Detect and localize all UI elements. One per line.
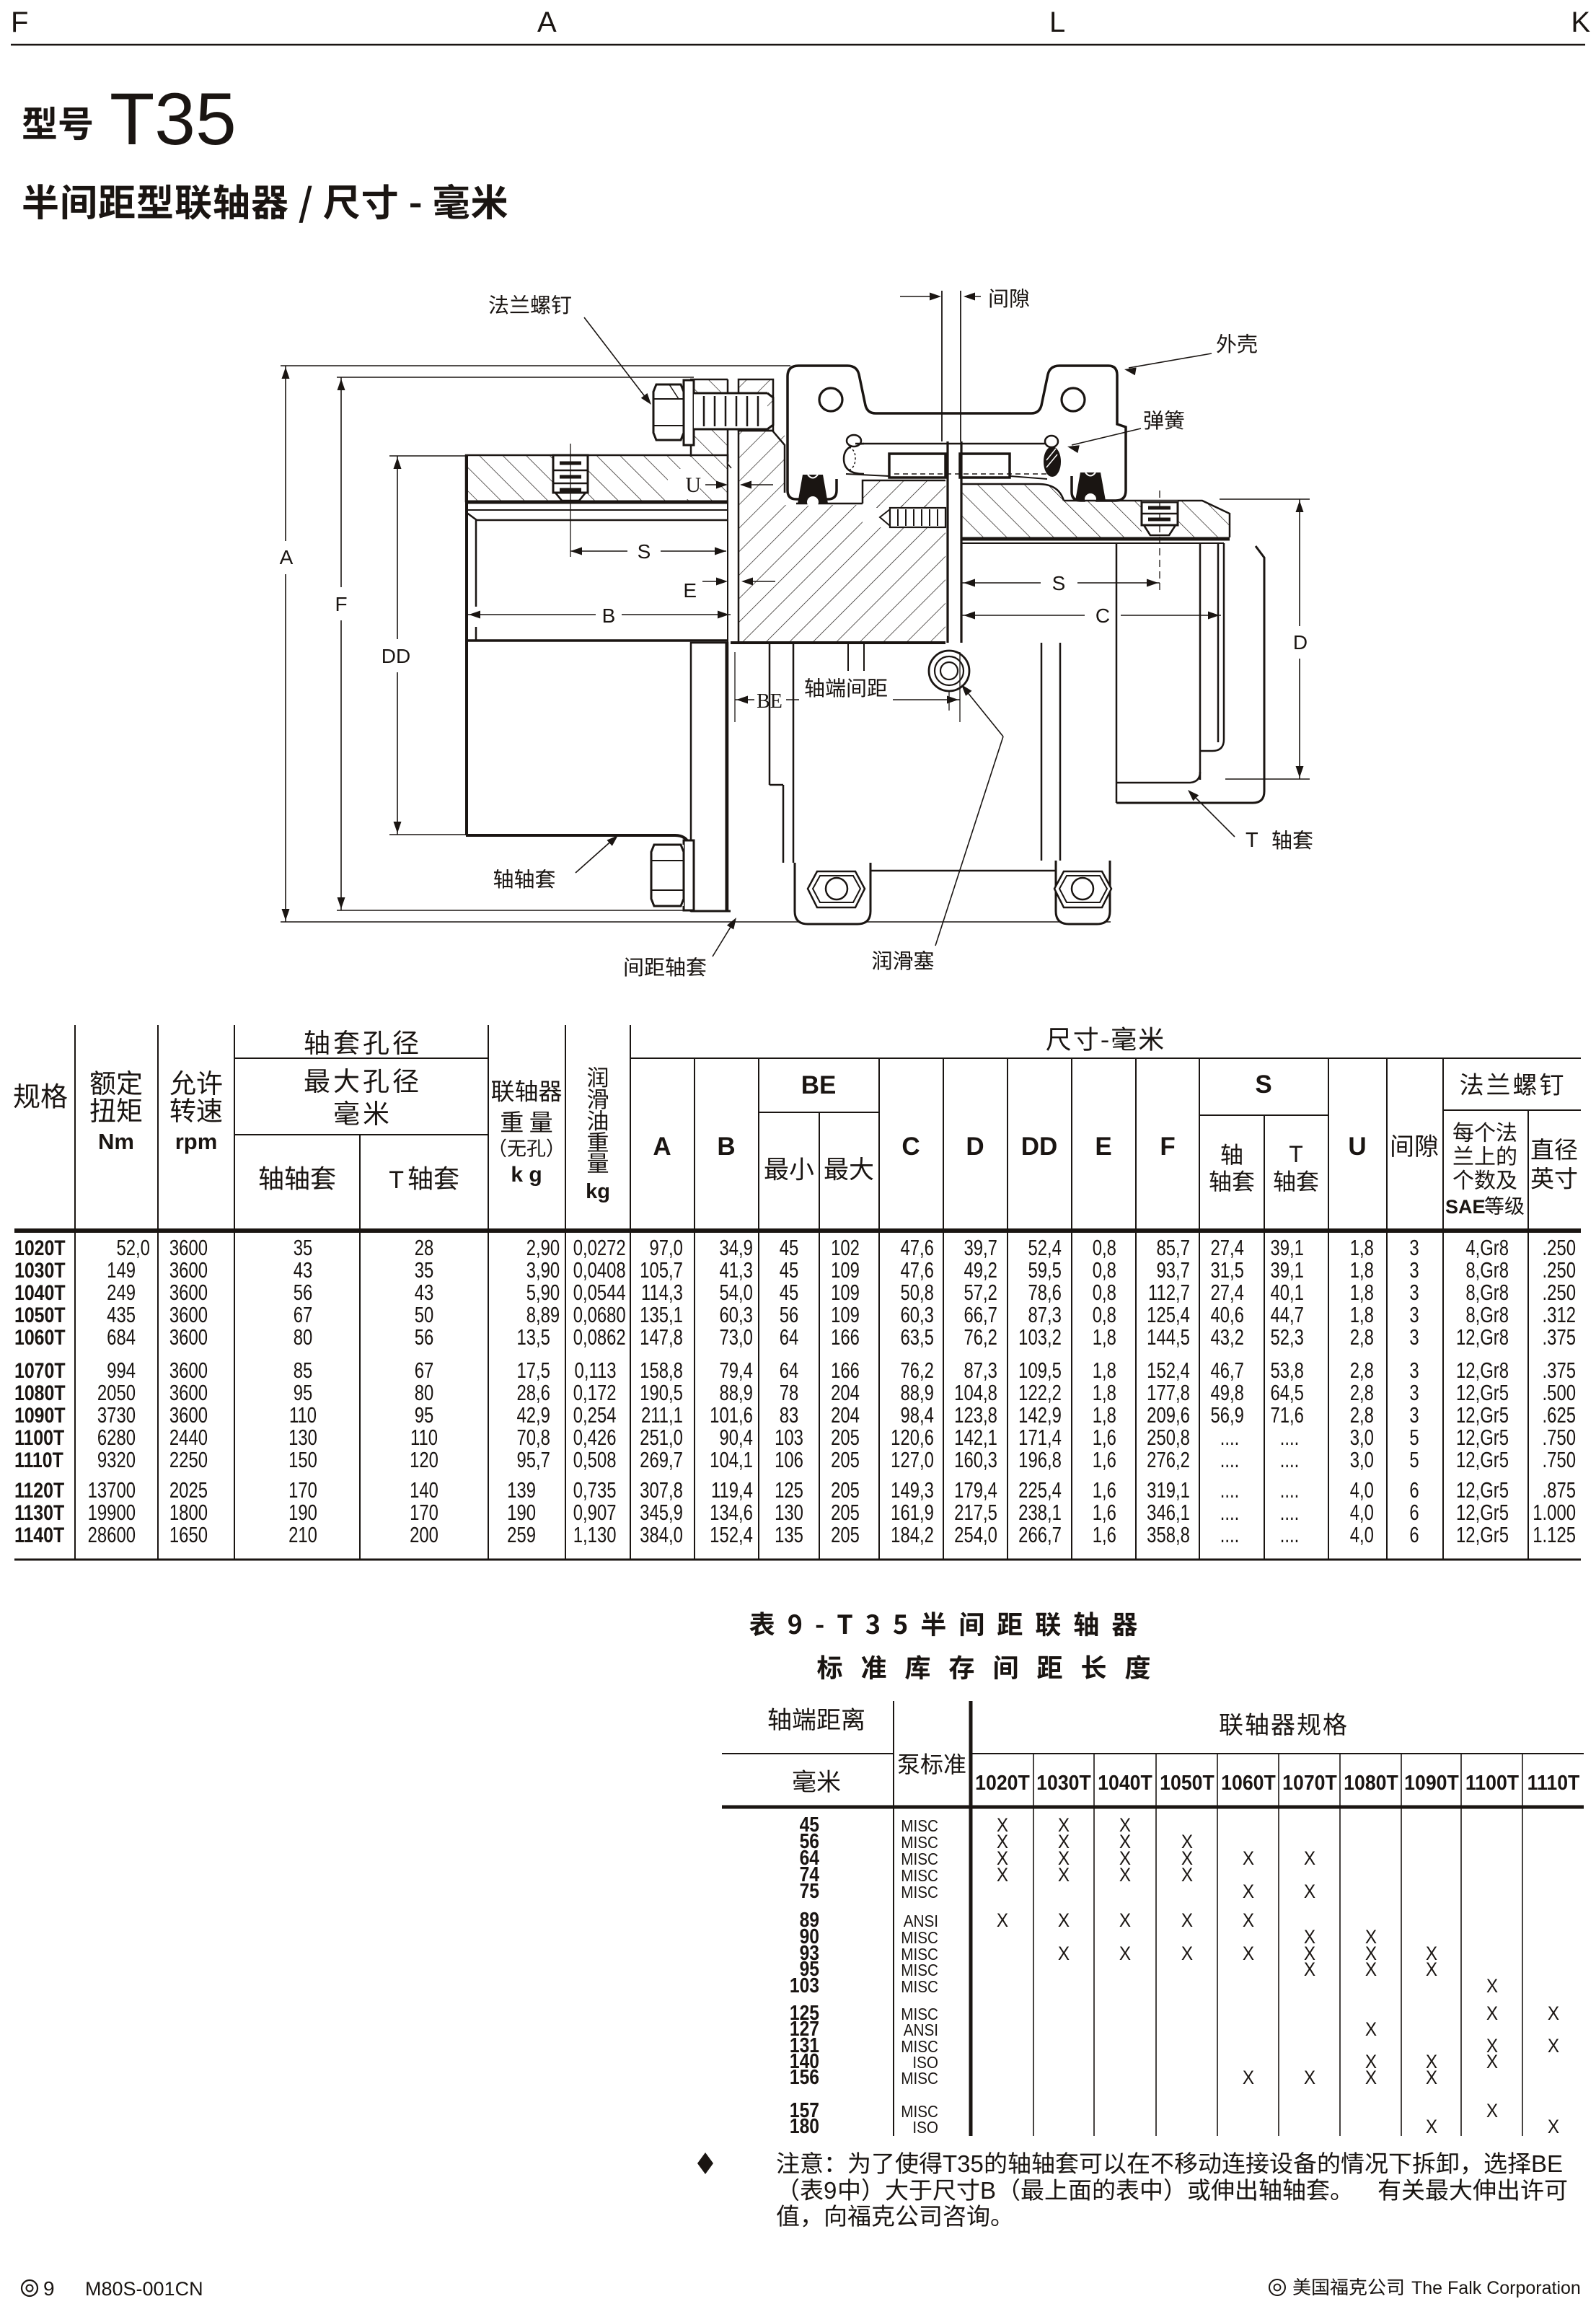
svg-text:106: 106	[775, 1447, 803, 1472]
svg-text:71,6: 71,6	[1270, 1402, 1303, 1428]
svg-text:41,3: 41,3	[719, 1257, 752, 1283]
svg-text:X: X	[1181, 1865, 1193, 1886]
svg-text:31,5: 31,5	[1210, 1257, 1243, 1283]
svg-text:BE: BE	[757, 690, 782, 713]
svg-text:F: F	[1160, 1133, 1175, 1161]
svg-text:39,7: 39,7	[964, 1235, 997, 1260]
svg-text:45: 45	[780, 1235, 799, 1260]
svg-text:3: 3	[1409, 1402, 1419, 1428]
svg-text:134,6: 134,6	[710, 1500, 753, 1525]
svg-text:X: X	[1119, 1910, 1131, 1931]
svg-text:105,7: 105,7	[640, 1257, 683, 1283]
svg-text:0,254: 0,254	[573, 1402, 617, 1428]
svg-text:120: 120	[410, 1447, 438, 1472]
svg-text:358,8: 358,8	[1147, 1522, 1190, 1547]
svg-text:204: 204	[831, 1402, 860, 1428]
svg-text:95: 95	[415, 1402, 434, 1428]
svg-text:319,1: 319,1	[1147, 1477, 1190, 1503]
svg-text:1,6: 1,6	[1093, 1500, 1116, 1525]
svg-text:T: T	[1246, 829, 1258, 852]
svg-text:384,0: 384,0	[640, 1522, 683, 1547]
svg-text:2,8: 2,8	[1350, 1324, 1374, 1350]
svg-text:190,5: 190,5	[640, 1380, 683, 1405]
svg-text:2440: 2440	[169, 1425, 208, 1450]
svg-text:95,7: 95,7	[516, 1447, 550, 1472]
svg-text:X: X	[1243, 1943, 1254, 1964]
svg-text:28600: 28600	[88, 1522, 136, 1547]
svg-text:2025: 2025	[169, 1477, 208, 1503]
svg-text:50: 50	[415, 1302, 434, 1327]
svg-text:X: X	[997, 1910, 1008, 1931]
svg-text:177,8: 177,8	[1147, 1380, 1190, 1405]
svg-text:78,6: 78,6	[1028, 1280, 1061, 1305]
svg-text:435: 435	[107, 1302, 136, 1327]
svg-text:1,8: 1,8	[1350, 1257, 1374, 1283]
svg-text:3600: 3600	[169, 1324, 208, 1350]
svg-text:F: F	[11, 6, 28, 38]
svg-text:161,9: 161,9	[891, 1500, 934, 1525]
svg-text:X: X	[1243, 1881, 1254, 1902]
svg-text:3600: 3600	[169, 1358, 208, 1383]
svg-text:....: ....	[1220, 1477, 1240, 1503]
svg-text:1090T: 1090T	[14, 1403, 66, 1428]
svg-text:56: 56	[415, 1324, 434, 1350]
svg-text:80: 80	[415, 1380, 434, 1405]
svg-text:X: X	[1426, 2116, 1437, 2137]
svg-text:3,0: 3,0	[1350, 1425, 1374, 1450]
svg-text:249: 249	[107, 1280, 136, 1305]
svg-text:X: X	[1119, 1865, 1131, 1886]
svg-text:9320: 9320	[97, 1447, 136, 1472]
svg-text:0,172: 0,172	[573, 1380, 617, 1405]
svg-text:X: X	[1486, 2003, 1498, 2024]
svg-text:3600: 3600	[169, 1235, 208, 1260]
svg-text:44,7: 44,7	[1270, 1302, 1303, 1327]
svg-text:130: 130	[775, 1500, 803, 1525]
svg-text:59,5: 59,5	[1028, 1257, 1061, 1283]
svg-text:E: E	[1095, 1133, 1111, 1161]
svg-text:276,2: 276,2	[1147, 1447, 1190, 1472]
svg-text:X: X	[1304, 1959, 1315, 1980]
svg-text:98,4: 98,4	[900, 1402, 933, 1428]
svg-text:3: 3	[1409, 1380, 1419, 1405]
svg-text:209,6: 209,6	[1147, 1402, 1190, 1428]
svg-text:79,4: 79,4	[719, 1358, 752, 1383]
svg-text:190: 190	[288, 1500, 317, 1525]
svg-text:35: 35	[415, 1257, 434, 1283]
svg-text:56: 56	[294, 1280, 313, 1305]
svg-text:85: 85	[294, 1358, 313, 1383]
svg-text:125,4: 125,4	[1147, 1302, 1190, 1327]
svg-text:101,6: 101,6	[710, 1402, 753, 1428]
svg-text:42,9: 42,9	[516, 1402, 550, 1428]
svg-text:C: C	[1095, 604, 1110, 627]
svg-text:205: 205	[831, 1425, 860, 1450]
svg-text:12,Gr5: 12,Gr5	[1456, 1522, 1509, 1547]
svg-text:8,89: 8,89	[526, 1302, 560, 1327]
svg-text:56,9: 56,9	[1210, 1402, 1243, 1428]
svg-text:1100T: 1100T	[1465, 1771, 1519, 1794]
svg-text:93,7: 93,7	[1156, 1257, 1189, 1283]
svg-text:5: 5	[1409, 1447, 1419, 1472]
svg-text:684: 684	[107, 1324, 136, 1350]
svg-text:1130T: 1130T	[14, 1500, 64, 1525]
svg-text:109: 109	[831, 1280, 860, 1305]
svg-text:17,5: 17,5	[516, 1358, 550, 1383]
svg-text:12,Gr5: 12,Gr5	[1456, 1447, 1509, 1472]
svg-text:6: 6	[1409, 1500, 1419, 1525]
svg-text:205: 205	[831, 1522, 860, 1547]
svg-text:8,Gr8: 8,Gr8	[1465, 1257, 1509, 1283]
svg-text:S: S	[1255, 1070, 1271, 1099]
svg-text:1,6: 1,6	[1093, 1425, 1116, 1450]
svg-text:88,9: 88,9	[900, 1380, 933, 1405]
svg-text:1120T: 1120T	[14, 1478, 64, 1503]
svg-text:180: 180	[790, 2114, 819, 2137]
svg-text:0,508: 0,508	[573, 1447, 617, 1472]
svg-text:225,4: 225,4	[1018, 1477, 1062, 1503]
svg-text:Nm: Nm	[98, 1129, 134, 1154]
svg-text:3600: 3600	[169, 1380, 208, 1405]
svg-text:X: X	[1119, 1943, 1131, 1964]
svg-text:....: ....	[1280, 1447, 1300, 1472]
svg-text:75: 75	[800, 1879, 819, 1902]
svg-text:144,5: 144,5	[1147, 1324, 1190, 1350]
svg-text:MISC: MISC	[901, 2069, 938, 2088]
svg-text:104,1: 104,1	[710, 1447, 753, 1472]
svg-text:X: X	[1548, 2116, 1559, 2137]
svg-text:160,3: 160,3	[954, 1447, 997, 1472]
svg-text:1030T: 1030T	[1036, 1771, 1091, 1794]
svg-text:0,0680: 0,0680	[573, 1302, 626, 1327]
svg-text:60,3: 60,3	[900, 1302, 933, 1327]
svg-text:1,6: 1,6	[1093, 1477, 1116, 1503]
svg-text:0,8: 0,8	[1093, 1235, 1116, 1260]
svg-text:1050T: 1050T	[1160, 1771, 1214, 1794]
svg-text:97,0: 97,0	[649, 1235, 682, 1260]
svg-text:X: X	[1304, 1881, 1315, 1902]
svg-text:0,8: 0,8	[1093, 1280, 1116, 1305]
svg-text:104,8: 104,8	[954, 1380, 997, 1405]
svg-text:3: 3	[1409, 1257, 1419, 1283]
svg-text:1050T: 1050T	[14, 1303, 66, 1327]
svg-text:205: 205	[831, 1500, 860, 1525]
svg-text:1110T: 1110T	[1527, 1771, 1580, 1794]
svg-text:35: 35	[294, 1235, 313, 1260]
svg-text:6: 6	[1409, 1477, 1419, 1503]
svg-text:.500: .500	[1543, 1380, 1576, 1405]
svg-text:0,426: 0,426	[573, 1425, 617, 1450]
svg-text:F: F	[335, 593, 347, 615]
svg-text:12,Gr5: 12,Gr5	[1456, 1425, 1509, 1450]
svg-text:0,113: 0,113	[575, 1358, 617, 1383]
svg-text:12,Gr5: 12,Gr5	[1456, 1500, 1509, 1525]
svg-text:2050: 2050	[97, 1380, 136, 1405]
svg-text:D: D	[1293, 631, 1308, 654]
svg-text:S: S	[638, 540, 651, 563]
svg-text:109,5: 109,5	[1018, 1358, 1062, 1383]
svg-text:A: A	[653, 1133, 671, 1161]
svg-text:X: X	[1243, 1848, 1254, 1869]
svg-text:4,Gr8: 4,Gr8	[1465, 1235, 1509, 1260]
svg-text:52,0: 52,0	[116, 1235, 149, 1260]
svg-text:150: 150	[288, 1447, 317, 1472]
svg-text:B: B	[980, 2177, 996, 2204]
svg-text:266,7: 266,7	[1018, 1522, 1062, 1547]
svg-text:53,8: 53,8	[1270, 1358, 1303, 1383]
svg-text:64: 64	[780, 1324, 799, 1350]
svg-text:1110T: 1110T	[14, 1448, 63, 1472]
svg-text:1.125: 1.125	[1533, 1522, 1576, 1547]
svg-text:0,907: 0,907	[573, 1500, 617, 1525]
svg-text:2,8: 2,8	[1350, 1402, 1374, 1428]
svg-text:204: 204	[831, 1380, 860, 1405]
svg-text:BE: BE	[1531, 2150, 1563, 2177]
svg-text:DD: DD	[382, 645, 410, 667]
svg-text:170: 170	[288, 1477, 317, 1503]
svg-text:5: 5	[1409, 1425, 1419, 1450]
svg-text:158,8: 158,8	[640, 1358, 683, 1383]
svg-text:250,8: 250,8	[1147, 1425, 1190, 1450]
svg-text:103,2: 103,2	[1018, 1324, 1062, 1350]
svg-text:251,0: 251,0	[640, 1425, 683, 1450]
svg-text:102: 102	[831, 1235, 860, 1260]
svg-text:A: A	[537, 6, 557, 38]
svg-text:0,8: 0,8	[1093, 1257, 1116, 1283]
svg-text:217,5: 217,5	[954, 1500, 997, 1525]
svg-text:X: X	[1304, 2067, 1315, 2088]
svg-text:1,8: 1,8	[1093, 1380, 1116, 1405]
svg-text:SAE: SAE	[1445, 1196, 1486, 1218]
svg-text:1090T: 1090T	[1404, 1771, 1459, 1794]
svg-text:X: X	[1486, 1976, 1498, 1997]
svg-text:3600: 3600	[169, 1280, 208, 1305]
svg-text:50,8: 50,8	[900, 1280, 933, 1305]
svg-text:170: 170	[410, 1500, 438, 1525]
svg-text:60,3: 60,3	[719, 1302, 752, 1327]
svg-text:1100T: 1100T	[14, 1425, 64, 1450]
svg-text:1080T: 1080T	[14, 1381, 66, 1405]
svg-text:156: 156	[790, 2065, 819, 2088]
svg-text:C: C	[901, 1133, 920, 1161]
svg-text:127,0: 127,0	[891, 1447, 934, 1472]
svg-text:.875: .875	[1543, 1477, 1576, 1503]
svg-text:U: U	[685, 473, 701, 497]
svg-text:....: ....	[1220, 1500, 1240, 1525]
svg-text:3: 3	[1409, 1235, 1419, 1260]
svg-text:3: 3	[1409, 1302, 1419, 1327]
svg-text:1060T: 1060T	[14, 1325, 66, 1350]
svg-text:307,8: 307,8	[640, 1477, 683, 1503]
svg-text:39,1: 39,1	[1270, 1257, 1303, 1283]
svg-text:X: X	[997, 1865, 1008, 1886]
svg-text:X: X	[1426, 2067, 1437, 2088]
svg-text:.625: .625	[1543, 1402, 1576, 1428]
svg-text:76,2: 76,2	[900, 1358, 933, 1383]
svg-text:8,Gr8: 8,Gr8	[1465, 1280, 1509, 1305]
svg-text:205: 205	[831, 1447, 860, 1472]
svg-text:BE: BE	[801, 1071, 837, 1099]
svg-text:2250: 2250	[169, 1447, 208, 1472]
svg-text:4,0: 4,0	[1350, 1477, 1374, 1503]
svg-text:A: A	[280, 546, 294, 568]
svg-text:8,Gr8: 8,Gr8	[1465, 1302, 1509, 1327]
svg-text:3: 3	[1409, 1280, 1419, 1305]
svg-text:1020T: 1020T	[14, 1236, 66, 1260]
svg-text:171,4: 171,4	[1018, 1425, 1062, 1450]
svg-text:142,1: 142,1	[954, 1425, 997, 1450]
svg-text:1,8: 1,8	[1093, 1402, 1116, 1428]
svg-text:....: ....	[1220, 1522, 1240, 1547]
svg-text:130: 130	[288, 1425, 317, 1450]
svg-text:4,0: 4,0	[1350, 1522, 1374, 1547]
svg-text:57,2: 57,2	[964, 1280, 997, 1305]
svg-text:1,130: 1,130	[573, 1522, 617, 1547]
svg-text:1.000: 1.000	[1533, 1500, 1576, 1525]
svg-text:M80S-001CN: M80S-001CN	[85, 2278, 203, 2300]
svg-text:1,8: 1,8	[1350, 1280, 1374, 1305]
svg-text:.750: .750	[1543, 1425, 1576, 1450]
svg-text:40,6: 40,6	[1210, 1302, 1243, 1327]
svg-text:X: X	[1486, 2052, 1498, 2072]
svg-text:....: ....	[1280, 1500, 1300, 1525]
svg-text:X: X	[1365, 2067, 1377, 2088]
svg-text:114,3: 114,3	[641, 1280, 683, 1305]
svg-text:3600: 3600	[169, 1257, 208, 1283]
svg-text:MISC: MISC	[901, 1977, 938, 1996]
svg-text:27,4: 27,4	[1210, 1280, 1243, 1305]
svg-text:345,9: 345,9	[640, 1500, 683, 1525]
svg-text:3730: 3730	[97, 1402, 136, 1428]
svg-text:X: X	[1365, 2019, 1377, 2040]
svg-text:179,4: 179,4	[954, 1477, 997, 1503]
svg-text:3: 3	[1409, 1358, 1419, 1383]
svg-text:X: X	[1058, 1943, 1070, 1964]
svg-text:205: 205	[831, 1477, 860, 1503]
svg-text:43: 43	[415, 1280, 434, 1305]
svg-text:X: X	[1243, 1910, 1254, 1931]
svg-text:109: 109	[831, 1257, 860, 1283]
svg-text:149: 149	[107, 1257, 136, 1283]
svg-text:1,8: 1,8	[1093, 1358, 1116, 1383]
svg-text:X: X	[1548, 2036, 1559, 2057]
svg-text:109: 109	[831, 1302, 860, 1327]
svg-text:X: X	[1181, 1910, 1193, 1931]
svg-text:87,3: 87,3	[964, 1358, 997, 1383]
svg-text:1070T: 1070T	[14, 1358, 66, 1383]
svg-text:49,8: 49,8	[1210, 1380, 1243, 1405]
svg-text:2,90: 2,90	[526, 1235, 560, 1260]
svg-text:X: X	[1426, 1959, 1437, 1980]
svg-text:142,9: 142,9	[1018, 1402, 1062, 1428]
svg-text:64,5: 64,5	[1270, 1380, 1303, 1405]
svg-text:K: K	[1571, 6, 1590, 38]
svg-text:kg: kg	[586, 1180, 610, 1203]
svg-text:X: X	[1365, 1959, 1377, 1980]
svg-text:0,8: 0,8	[1093, 1302, 1116, 1327]
svg-text:119,4: 119,4	[711, 1477, 753, 1503]
svg-text:1060T: 1060T	[1221, 1771, 1276, 1794]
svg-text:.250: .250	[1543, 1257, 1576, 1283]
svg-text:196,8: 196,8	[1018, 1447, 1062, 1472]
svg-text:70,8: 70,8	[516, 1425, 550, 1450]
svg-text:0,0408: 0,0408	[573, 1257, 626, 1283]
svg-text:28: 28	[415, 1235, 434, 1260]
svg-text:E: E	[683, 579, 697, 602]
svg-text:103: 103	[775, 1425, 803, 1450]
svg-text:T35: T35	[110, 78, 237, 160]
svg-text:0,0862: 0,0862	[573, 1324, 626, 1350]
svg-text:1800: 1800	[169, 1500, 208, 1525]
svg-text:211,1: 211,1	[641, 1402, 683, 1428]
svg-text:254,0: 254,0	[954, 1522, 997, 1547]
svg-text:90,4: 90,4	[719, 1425, 752, 1450]
svg-text:112,7: 112,7	[1148, 1280, 1190, 1305]
svg-text:78: 78	[780, 1380, 799, 1405]
svg-text:T: T	[1289, 1141, 1303, 1167]
svg-text:184,2: 184,2	[891, 1522, 934, 1547]
svg-text:1040T: 1040T	[14, 1280, 66, 1305]
svg-text:X: X	[1243, 2067, 1254, 2088]
svg-text:....: ....	[1280, 1425, 1300, 1450]
svg-text:B: B	[602, 604, 616, 627]
svg-text:1070T: 1070T	[1282, 1771, 1337, 1794]
svg-text:40,1: 40,1	[1270, 1280, 1303, 1305]
svg-text:.250: .250	[1543, 1235, 1576, 1260]
svg-text:1,6: 1,6	[1093, 1522, 1116, 1547]
svg-text:3600: 3600	[169, 1302, 208, 1327]
svg-text:2,8: 2,8	[1350, 1358, 1374, 1383]
svg-text:122,2: 122,2	[1018, 1380, 1062, 1405]
svg-text:B: B	[717, 1133, 735, 1161]
svg-text:1040T: 1040T	[1098, 1771, 1152, 1794]
svg-text:U: U	[1348, 1133, 1366, 1161]
svg-text:The Falk Corporation: The Falk Corporation	[1411, 2278, 1581, 2298]
svg-text:149,3: 149,3	[891, 1477, 934, 1503]
svg-text:47,6: 47,6	[900, 1257, 933, 1283]
svg-text:.375: .375	[1543, 1358, 1576, 1383]
svg-text:1650: 1650	[169, 1522, 208, 1547]
svg-text:43,2: 43,2	[1210, 1324, 1243, 1350]
svg-text:73,0: 73,0	[719, 1324, 752, 1350]
svg-text:190: 190	[507, 1500, 536, 1525]
svg-text:27,4: 27,4	[1210, 1235, 1243, 1260]
svg-text:6: 6	[1409, 1522, 1419, 1547]
svg-text:67: 67	[415, 1358, 434, 1383]
svg-text:43: 43	[294, 1257, 313, 1283]
svg-text:80: 80	[294, 1324, 313, 1350]
svg-text:66,7: 66,7	[964, 1302, 997, 1327]
svg-text:1030T: 1030T	[14, 1258, 66, 1283]
svg-text:13,5: 13,5	[516, 1324, 550, 1350]
svg-text:166: 166	[831, 1358, 860, 1383]
svg-text:238,1: 238,1	[1018, 1500, 1062, 1525]
svg-text:1,8: 1,8	[1093, 1324, 1116, 1350]
svg-text:1080T: 1080T	[1344, 1771, 1398, 1794]
svg-text:346,1: 346,1	[1147, 1500, 1190, 1525]
svg-text:110: 110	[289, 1402, 317, 1428]
svg-text:3,0: 3,0	[1350, 1447, 1374, 1472]
svg-text:140: 140	[410, 1477, 438, 1503]
svg-text:135,1: 135,1	[640, 1302, 683, 1327]
svg-text:0,0544: 0,0544	[573, 1280, 626, 1305]
svg-text:85,7: 85,7	[1156, 1235, 1189, 1260]
svg-text:9: 9	[824, 2177, 837, 2204]
svg-text:12,Gr8: 12,Gr8	[1456, 1324, 1509, 1350]
svg-text:46,7: 46,7	[1210, 1358, 1243, 1383]
svg-text:L: L	[1049, 6, 1065, 38]
svg-text:1,6: 1,6	[1093, 1447, 1116, 1472]
